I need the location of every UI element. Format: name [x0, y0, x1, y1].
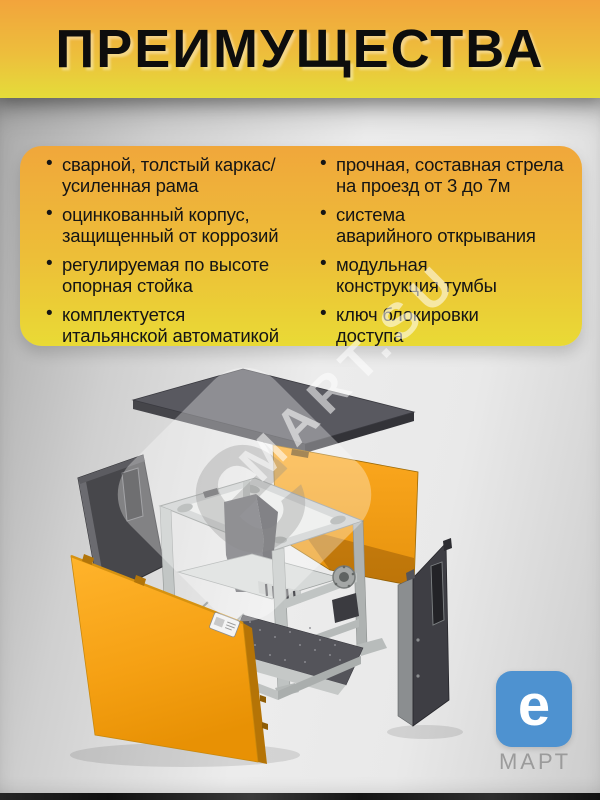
advantage-text: сварной, толстый каркас/ усиленная рама	[62, 154, 275, 196]
promo-poster: ПРЕИМУЩЕСТВА •сварной, толстый каркас/ у…	[0, 0, 600, 800]
advantage-text: регулируемая по высоте опорная стойка	[62, 254, 269, 296]
title-banner: ПРЕИМУЩЕСТВА	[0, 0, 600, 98]
advantages-card: •сварной, толстый каркас/ усиленная рама…	[20, 146, 582, 346]
advantage-item: •ключ блокировки доступа	[318, 304, 570, 346]
bullet-icon: •	[320, 253, 326, 274]
bullet-icon: •	[46, 303, 52, 324]
advantage-item: •регулируемая по высоте опорная стойка	[44, 254, 296, 296]
advantage-text: система аварийного открывания	[336, 204, 536, 246]
bullet-icon: •	[320, 153, 326, 174]
logo-letter: e	[518, 677, 550, 735]
bullet-icon: •	[320, 203, 326, 224]
door-shadow	[387, 725, 463, 739]
advantages-column-left: •сварной, толстый каркас/ усиленная рама…	[44, 154, 296, 346]
bullet-icon: •	[46, 253, 52, 274]
advantage-item: •модульная конструкция тумбы	[318, 254, 570, 296]
advantage-text: ключ блокировки доступа	[336, 304, 479, 346]
top-lid-panel	[133, 369, 414, 453]
bottom-strip	[0, 793, 600, 800]
advantage-text: прочная, составная стрела на проезд от 3…	[336, 154, 563, 196]
logo-name: МАРТ	[496, 749, 574, 775]
advantage-item: •сварной, толстый каркас/ усиленная рама	[44, 154, 296, 196]
advantages-column-right: •прочная, составная стрела на проезд от …	[318, 154, 570, 346]
advantage-text: модульная конструкция тумбы	[336, 254, 497, 296]
logo-icon: e	[496, 671, 572, 747]
advantage-item: •система аварийного открывания	[318, 204, 570, 246]
bullet-icon: •	[46, 153, 52, 174]
bullet-icon: •	[320, 303, 326, 324]
page-title: ПРЕИМУЩЕСТВА	[55, 18, 544, 80]
advantage-item: •прочная, составная стрела на проезд от …	[318, 154, 570, 196]
bullet-icon: •	[46, 203, 52, 224]
advantage-text: оцинкованный корпус, защищенный от корро…	[62, 204, 278, 246]
advantage-text: комплектуется итальянской автоматикой	[62, 304, 279, 346]
advantage-item: •комплектуется итальянской автоматикой	[44, 304, 296, 346]
advantage-item: •оцинкованный корпус, защищенный от корр…	[44, 204, 296, 246]
brand-logo: e МАРТ	[496, 671, 574, 775]
